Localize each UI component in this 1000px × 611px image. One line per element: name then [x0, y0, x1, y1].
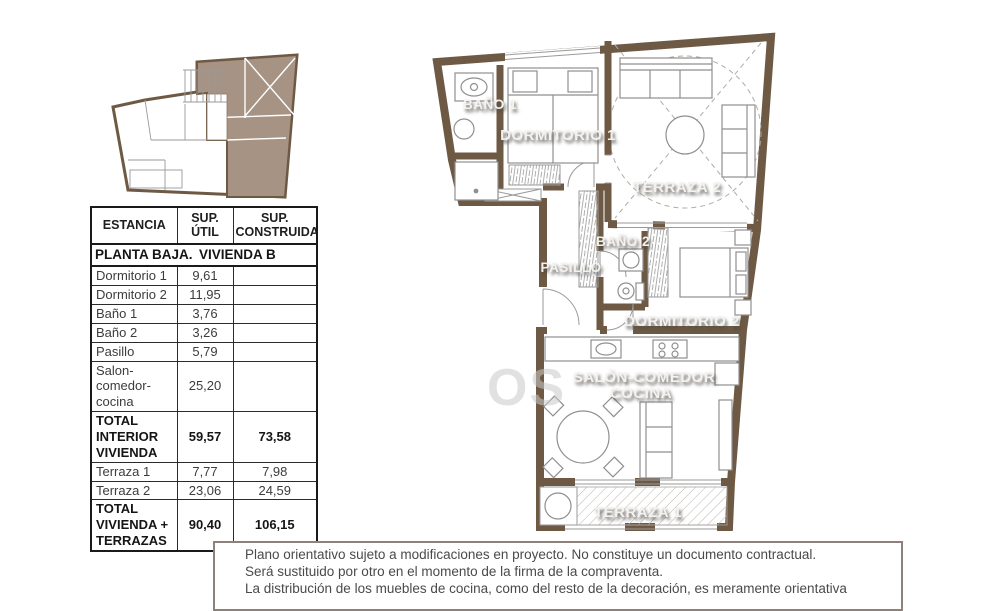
site-plan-unit-inner-room: [207, 94, 227, 140]
site-plan-overview: [105, 42, 305, 207]
room-label-terraza1: TERRAZA 1: [594, 504, 682, 521]
table-section-row: PLANTA BAJA.VIVIENDA B: [91, 244, 317, 266]
section-vivienda: VIVIENDA B: [199, 247, 276, 262]
floor-plan: BAÑO 1 DORMITORIO 1 TERRAZA 2 BAÑO 2 PAS…: [425, 25, 785, 541]
table-row: Terraza 2 23,06 24,59: [91, 481, 317, 500]
room-label-dormitorio1: DORMITORIO 1: [500, 127, 616, 144]
disclaimer-line: Será sustituido por otro en el momento d…: [245, 563, 893, 580]
room-label-pasillo: PASILLO: [540, 260, 601, 275]
room-label-salon-comedor: SALÓN-COMEDOR: [573, 368, 715, 386]
room-label-bano1: BAÑO 1: [463, 97, 517, 112]
disclaimer-line: Plano orientativo sujeto a modificacione…: [245, 546, 893, 563]
header-sup-construida: SUP. CONSTRUIDA: [233, 207, 317, 244]
room-label-terraza2: TERRAZA 2: [633, 179, 721, 196]
table-header-row: ESTANCIA SUP. ÚTIL SUP. CONSTRUIDA: [91, 207, 317, 244]
room-label-dormitorio2: DORMITORIO 2: [624, 313, 740, 330]
header-estancia: ESTANCIA: [91, 207, 177, 244]
room-label-bano2: BAÑO 2: [596, 234, 650, 249]
disclaimer-box: Plano orientativo sujeto a modificacione…: [213, 541, 903, 611]
areas-table: ESTANCIA SUP. ÚTIL SUP. CONSTRUIDA PLANT…: [90, 206, 318, 552]
table-row: Terraza 1 7,77 7,98: [91, 462, 317, 481]
disclaimer-line: La distribución de los muebles de cocina…: [245, 580, 893, 597]
header-sup-util: SUP. ÚTIL: [177, 207, 233, 244]
table-row: Baño 1 3,76: [91, 304, 317, 323]
table-row-total-interior: TOTAL INTERIOR VIVIENDA 59,57 73,58: [91, 412, 317, 463]
table-row: Dormitorio 2 11,95: [91, 286, 317, 305]
table-row: Dormitorio 1 9,61: [91, 266, 317, 285]
page-root: { "colors": { "wall": "#6e5a44", "highli…: [0, 0, 1000, 578]
table-row: Salon-comedor-cocina 25,20: [91, 361, 317, 412]
section-planta: PLANTA BAJA.: [95, 247, 199, 263]
table-row: Pasillo 5,79: [91, 342, 317, 361]
table-row: Baño 2 3,26: [91, 323, 317, 342]
room-label-cocina: COCINA: [610, 385, 672, 402]
